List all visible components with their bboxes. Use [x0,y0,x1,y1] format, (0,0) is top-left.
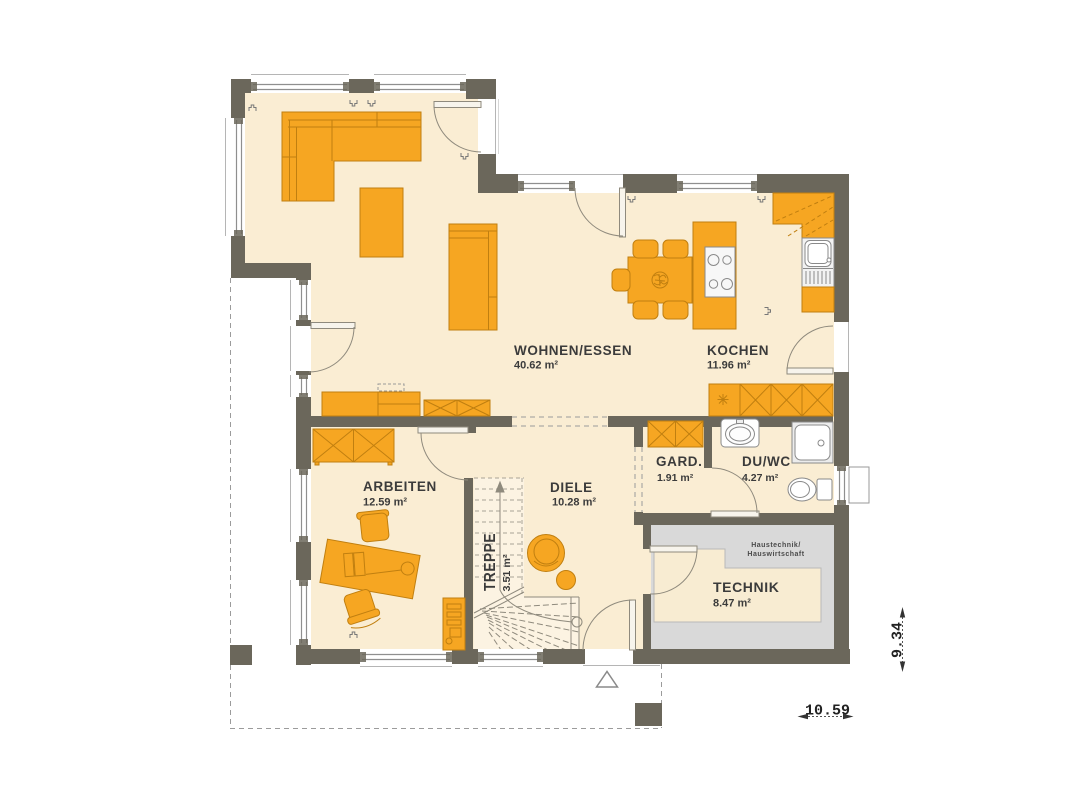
svg-text:12.59 m²: 12.59 m² [363,497,407,509]
svg-text:ARBEITEN: ARBEITEN [363,479,437,494]
svg-text:8.47 m²: 8.47 m² [713,598,751,610]
svg-text:40.62 m²: 40.62 m² [514,360,558,372]
svg-text:DU/WC: DU/WC [742,454,791,469]
svg-text:TREPPE: TREPPE [482,533,499,591]
svg-text:11.96 m²: 11.96 m² [707,360,751,372]
svg-text:WOHNEN/ESSEN: WOHNEN/ESSEN [514,343,632,358]
svg-text:3.51 m²: 3.51 m² [501,554,513,592]
svg-text:GARD.: GARD. [656,454,703,469]
svg-text:4.27 m²: 4.27 m² [742,472,779,484]
svg-text:KOCHEN: KOCHEN [707,343,769,358]
svg-text:10.28 m²: 10.28 m² [552,497,596,509]
svg-text:9.34: 9.34 [890,622,907,658]
svg-text:DIELE: DIELE [550,480,593,495]
svg-text:1.91 m²: 1.91 m² [657,472,694,484]
svg-text:Haustechnik/: Haustechnik/ [751,542,801,549]
svg-text:Hauswirtschaft: Hauswirtschaft [747,551,804,558]
svg-text:TECHNIK: TECHNIK [713,579,779,595]
